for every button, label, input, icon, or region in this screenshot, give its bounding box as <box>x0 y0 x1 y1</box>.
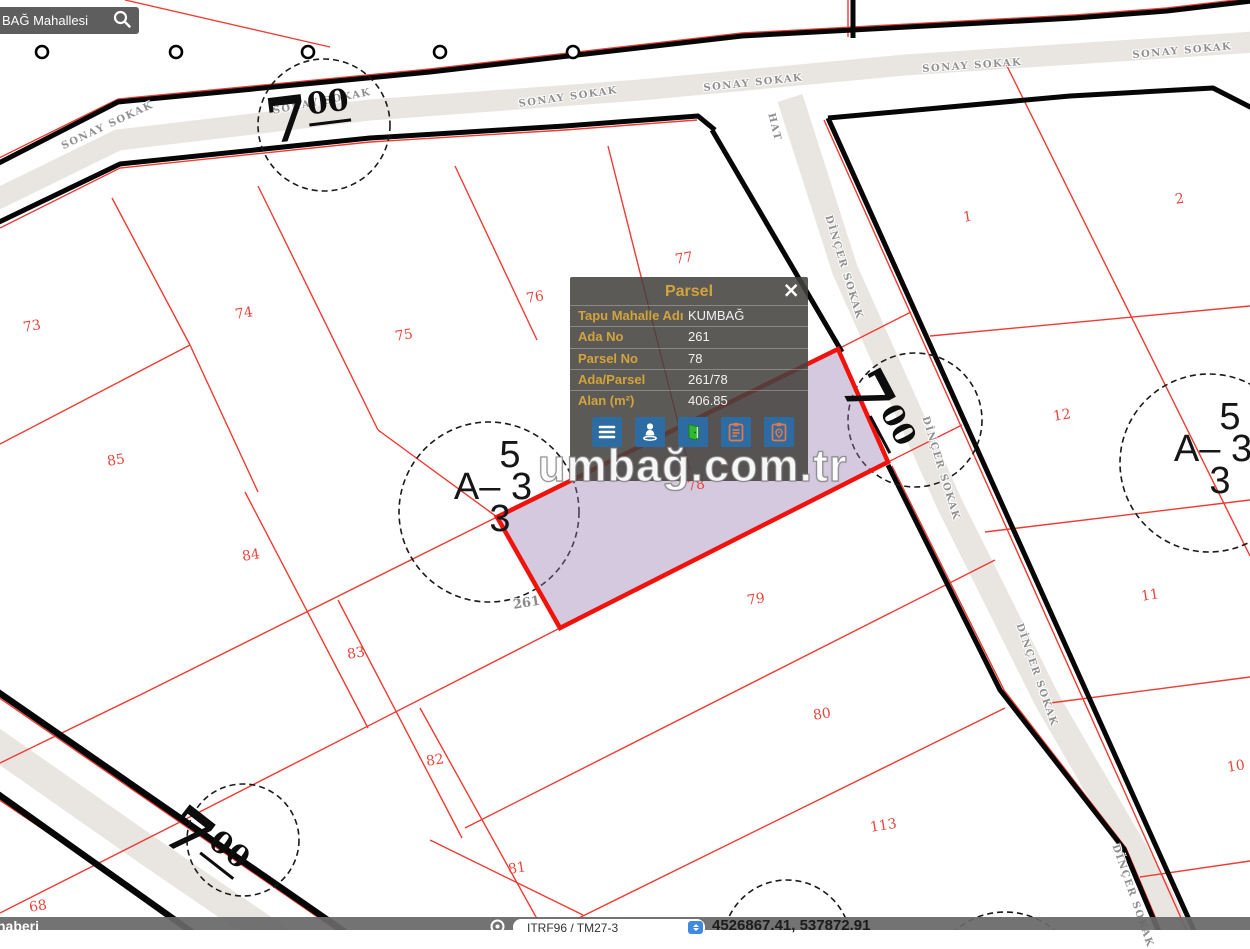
coordinate-readout: 4526867.41, 537872.91 <box>712 917 871 934</box>
popup-row: Tapu Mahalle AdıKUMBAĞ <box>570 305 808 326</box>
popup-row-value: 406.85 <box>684 393 728 409</box>
parcel-number-label: 79 <box>746 590 766 609</box>
parcel-number-label: 83 <box>346 644 366 663</box>
search-input[interactable] <box>0 13 108 28</box>
parcel-number-label: 81 <box>507 859 527 878</box>
parcel-number-label: 80 <box>812 705 832 724</box>
popup-title: Parsel <box>570 277 808 305</box>
popup-row-label: Ada/Parsel <box>578 372 684 388</box>
status-left-text: haberi <box>0 918 39 934</box>
parcel-number-label: 75 <box>394 326 414 345</box>
popup-row-label: Parsel No <box>578 351 684 367</box>
popup-row-label: Tapu Mahalle Adı <box>578 308 684 324</box>
search-box <box>0 7 139 34</box>
parcel-number-label: 82 <box>425 751 445 770</box>
popup-row-value: 261/78 <box>684 372 728 388</box>
parcel-number-label: 76 <box>525 288 545 307</box>
popup-row: Ada No261 <box>570 326 808 347</box>
select-stepper-icon <box>688 921 703 934</box>
zoning-notation-label: 5A– 33 <box>1148 402 1250 498</box>
popup-row: Alan (m²)406.85 <box>570 390 808 411</box>
parcel-number-label: 84 <box>241 546 261 565</box>
parcel-number-label: 73 <box>22 317 42 336</box>
road-width-marker: 700 <box>262 82 354 154</box>
popup-row-label: Ada No <box>578 329 684 345</box>
status-bar: haberi ITRF96 / TM27-3 4526867.41, 53787… <box>0 917 1250 930</box>
utility-symbol-circles <box>36 46 579 58</box>
parcel-number-label: 74 <box>234 304 254 323</box>
locate-crosshair-icon[interactable] <box>489 918 506 940</box>
popup-row-value: KUMBAĞ <box>684 308 744 324</box>
popup-row-value: 261 <box>684 329 710 345</box>
popup-rows: Tapu Mahalle AdıKUMBAĞAda No261Parsel No… <box>570 305 808 411</box>
parcel-number-label: 10 <box>1226 757 1246 776</box>
close-icon[interactable]: × <box>782 280 800 300</box>
parcel-number-label: 11 <box>1140 586 1160 605</box>
search-icon <box>112 9 132 29</box>
popup-row: Parsel No78 <box>570 348 808 369</box>
parcel-number-label: 68 <box>28 897 48 916</box>
popup-row: Ada/Parsel261/78 <box>570 369 808 390</box>
parcel-number-label: 85 <box>106 451 126 470</box>
search-button[interactable] <box>108 9 136 32</box>
parcel-number-label: 12 <box>1052 406 1072 425</box>
crs-select[interactable]: ITRF96 / TM27-3 <box>513 919 705 936</box>
popup-row-label: Alan (m²) <box>578 393 684 409</box>
site-watermark: umbağ.com.tr <box>538 440 848 492</box>
parcel-number-label: 77 <box>674 249 694 268</box>
crs-select-value: ITRF96 / TM27-3 <box>513 921 688 935</box>
popup-row-value: 78 <box>684 351 702 367</box>
